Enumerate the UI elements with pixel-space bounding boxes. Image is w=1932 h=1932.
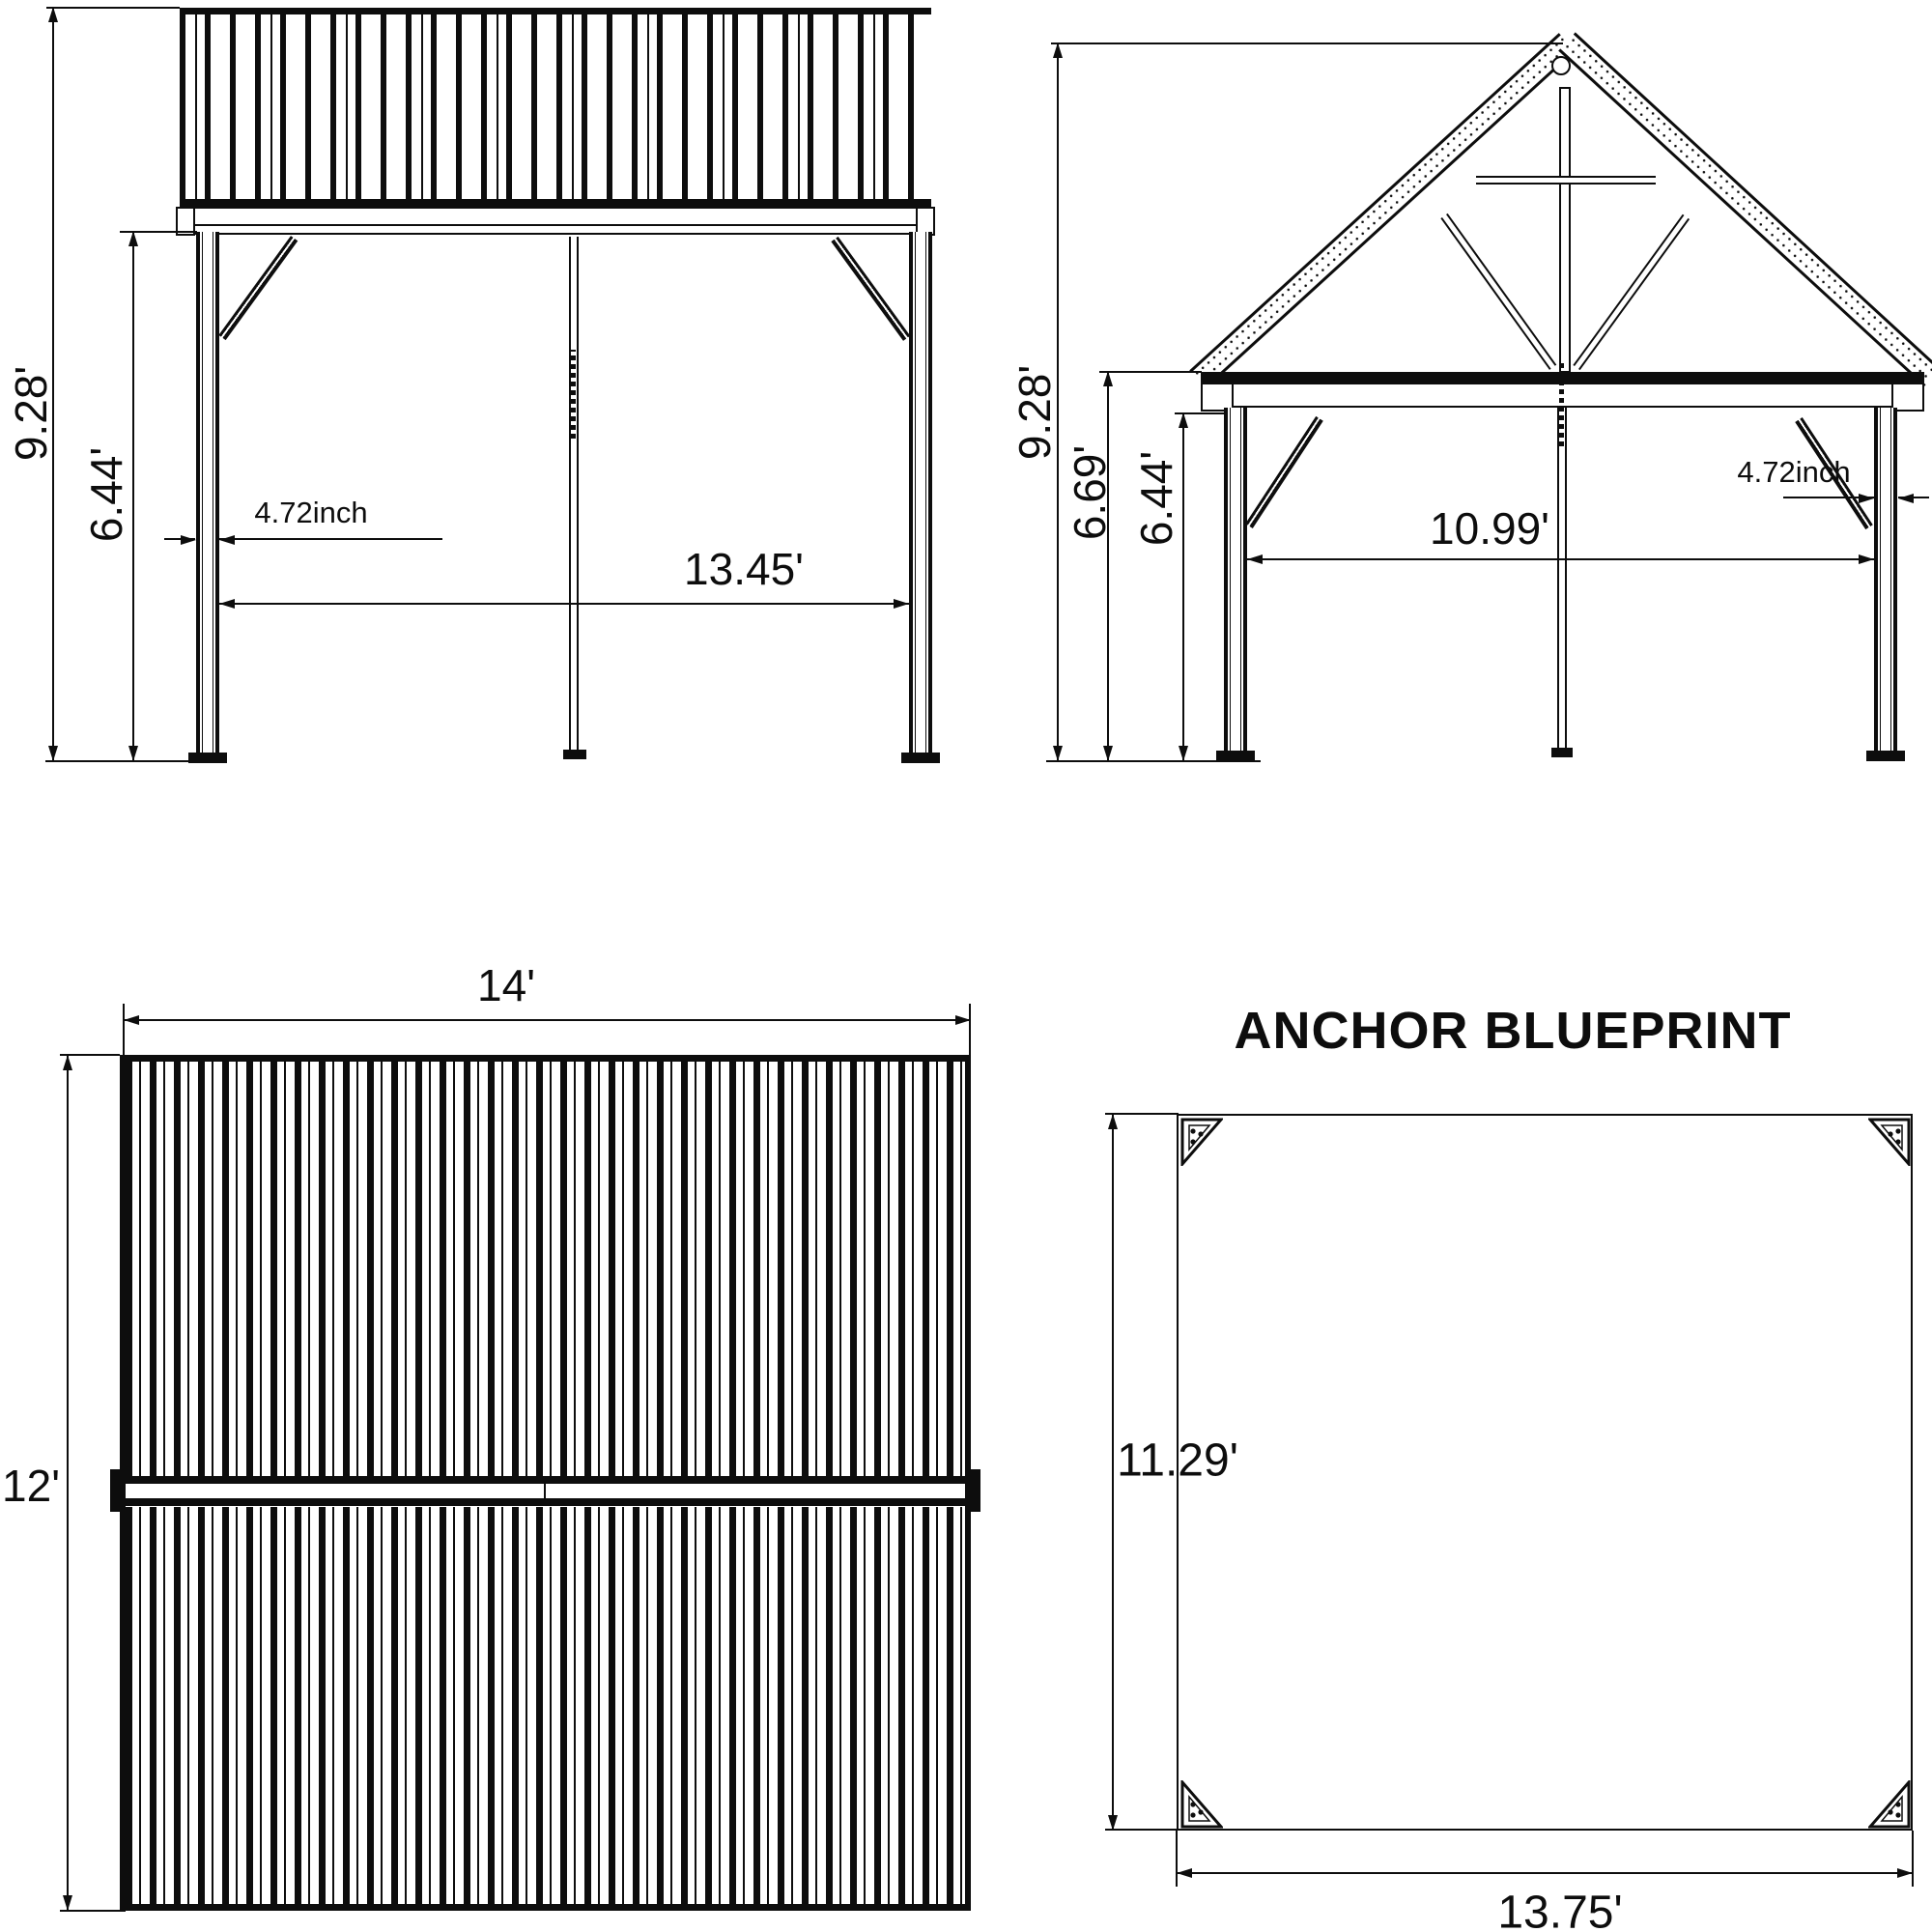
- arrow-icon: [1859, 494, 1874, 503]
- front-right-strut: [1573, 214, 1690, 370]
- anchor-dim-width-line: [1177, 1872, 1913, 1874]
- arrow-icon: [124, 1015, 139, 1025]
- arrow-icon: [1179, 746, 1188, 761]
- side-dim-postwidth-label: 4.72inch: [254, 496, 367, 530]
- front-dim-post-line: [1182, 412, 1184, 761]
- arrow-icon: [181, 535, 196, 545]
- side-beam-line: [193, 233, 918, 235]
- front-right-post: [1874, 408, 1897, 753]
- arrow-icon: [955, 1015, 971, 1025]
- anchor-plate-bottom-right: [1868, 1780, 1911, 1829]
- arrow-icon: [219, 535, 235, 545]
- side-dim-post-label: 6.44': [80, 447, 132, 542]
- front-dim-eave-label: 6.69': [1064, 445, 1116, 540]
- arrow-icon: [128, 231, 138, 246]
- side-dim-overall-label: 9.28': [5, 366, 57, 461]
- front-ext-eave: [1099, 371, 1202, 373]
- side-roof-panel: [180, 8, 931, 207]
- arrow-icon: [128, 746, 138, 761]
- side-right-post: [909, 232, 932, 755]
- side-left-knee-brace: [218, 236, 298, 340]
- anchor-plate-bottom-left: [1180, 1780, 1223, 1829]
- front-center-post: [1557, 408, 1567, 751]
- plan-ridge-line-bottom: [126, 1498, 965, 1506]
- arrow-icon: [219, 599, 235, 609]
- arrow-icon: [1247, 554, 1263, 564]
- front-dim-post-label: 6.44': [1130, 451, 1182, 546]
- anchor-ext-right: [1912, 1831, 1914, 1887]
- front-center-post-base: [1551, 748, 1573, 757]
- front-roof-right-slope: [1558, 32, 1932, 386]
- arrow-icon: [1179, 412, 1188, 428]
- front-dim-span-line: [1247, 558, 1874, 560]
- arrow-icon: [894, 599, 909, 609]
- side-ext-top: [46, 7, 180, 9]
- front-left-post: [1224, 408, 1247, 753]
- plan-ridge-line-top: [126, 1476, 965, 1484]
- arrow-icon: [1898, 494, 1914, 503]
- arrow-icon: [63, 1055, 72, 1070]
- side-roof-fascia: [176, 207, 935, 226]
- front-right-post-base: [1866, 751, 1905, 761]
- plan-dim-depth-line: [67, 1055, 69, 1911]
- arrow-icon: [1108, 1815, 1118, 1831]
- arrow-icon: [1103, 371, 1113, 386]
- side-center-post: [569, 237, 579, 753]
- plan-ext-left: [123, 1004, 125, 1055]
- arrow-icon: [1897, 1868, 1913, 1878]
- side-dim-span-label: 13.45': [684, 543, 804, 595]
- front-left-strut: [1440, 213, 1556, 370]
- plan-ext-right: [969, 1004, 971, 1055]
- front-king-post: [1559, 87, 1571, 373]
- front-roof-left-slope: [1189, 33, 1576, 388]
- front-collar-tie: [1476, 176, 1656, 185]
- anchor-plate-top-right: [1868, 1118, 1911, 1166]
- plan-dim-depth-label: 12': [2, 1460, 60, 1512]
- arrow-icon: [1053, 43, 1063, 58]
- anchor-ext-left: [1176, 1831, 1178, 1887]
- front-ext-peak: [1051, 43, 1563, 44]
- arrow-icon: [1053, 746, 1063, 761]
- front-post-watermark: [1559, 359, 1564, 446]
- side-dim-span-line: [219, 603, 909, 605]
- front-dim-overall-label: 9.28': [1009, 365, 1061, 460]
- front-dim-span-label: 10.99': [1430, 502, 1549, 554]
- side-left-post: [196, 232, 219, 755]
- anchor-dim-depth-line: [1112, 1114, 1114, 1831]
- anchor-plate-top-left: [1180, 1118, 1223, 1166]
- arrow-icon: [1859, 554, 1874, 564]
- anchor-dim-width-label: 13.75': [1497, 1887, 1622, 1932]
- arrow-icon: [1103, 746, 1113, 761]
- side-dim-postwidth-line2: [219, 538, 442, 540]
- plan-ridge-seam: [544, 1484, 546, 1498]
- anchor-dim-depth-label: 11.29': [1117, 1435, 1238, 1488]
- gazebo-dimension-drawing: 9.28' 6.44' 4.72inch 13.45': [0, 0, 1932, 1932]
- front-roof-peak-cap: [1551, 56, 1571, 75]
- front-ext-bottom: [1046, 760, 1261, 762]
- arrow-icon: [48, 746, 58, 761]
- arrow-icon: [1108, 1114, 1118, 1129]
- side-dim-post-line: [132, 231, 134, 761]
- arrow-icon: [63, 1895, 72, 1911]
- side-post-watermark: [571, 350, 576, 439]
- plan-ridge-tab-right: [969, 1469, 980, 1512]
- plan-ridge-tab-left: [110, 1469, 122, 1512]
- side-right-knee-brace: [831, 237, 910, 341]
- front-dim-eave-line: [1107, 371, 1109, 761]
- front-left-knee-brace: [1245, 416, 1323, 528]
- arrow-icon: [48, 7, 58, 22]
- side-right-post-base: [901, 753, 940, 763]
- side-center-post-base: [563, 750, 586, 759]
- arrow-icon: [1177, 1868, 1192, 1878]
- plan-dim-width-line: [124, 1019, 971, 1021]
- side-ext-bottom: [45, 760, 226, 762]
- anchor-base-outline: [1177, 1114, 1913, 1831]
- plan-dim-width-label: 14': [477, 959, 535, 1011]
- front-dim-postwidth-label: 4.72inch: [1737, 455, 1850, 490]
- anchor-title: ANCHOR BLUEPRINT: [1235, 1001, 1792, 1061]
